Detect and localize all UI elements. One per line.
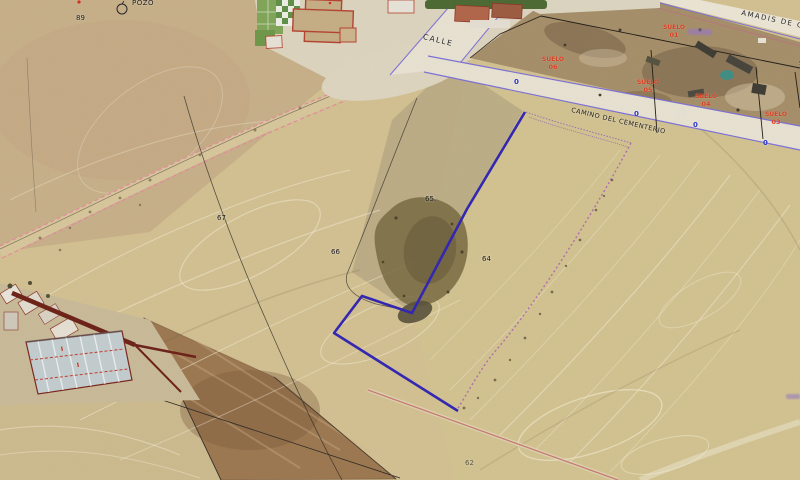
road-marker-0-d: 0 (763, 140, 768, 147)
poi-label-pozo: POZO (132, 0, 154, 7)
road-marker-0-c: 0 (693, 122, 698, 129)
road-marker-0-a: 0 (514, 79, 519, 86)
suelo-label-01: SUELO 01 (660, 25, 688, 39)
parcel-number-62: 62 (465, 460, 474, 467)
parcel-number-65: 65. (425, 196, 436, 203)
suelo-label-05: SUELO 05 (634, 80, 662, 94)
aerial-map-viewport[interactable]: POZO 89 67 66 65. 64 62 CALLE CAMINO DEL… (0, 0, 800, 480)
photo-grain-overlay (0, 0, 800, 480)
road-marker-0-b: 0 (634, 111, 639, 118)
suelo-label-03: SUELO 03 (762, 112, 790, 126)
suelo-label-04: SUELO 04 (692, 94, 720, 108)
parcel-number-66: 66 (331, 249, 340, 256)
illegible-purple-label (688, 29, 712, 36)
suelo-label-clipped-right-edge: SU (789, 61, 800, 67)
parcel-number-67: 67 (217, 215, 226, 222)
map-graphics (0, 0, 800, 480)
parcel-number-89: 89 (76, 15, 85, 22)
illegible-purple-label-edge (786, 394, 800, 399)
parcel-number-64: 64 (482, 256, 491, 263)
suelo-label-06: SUELO 06 (539, 57, 567, 71)
